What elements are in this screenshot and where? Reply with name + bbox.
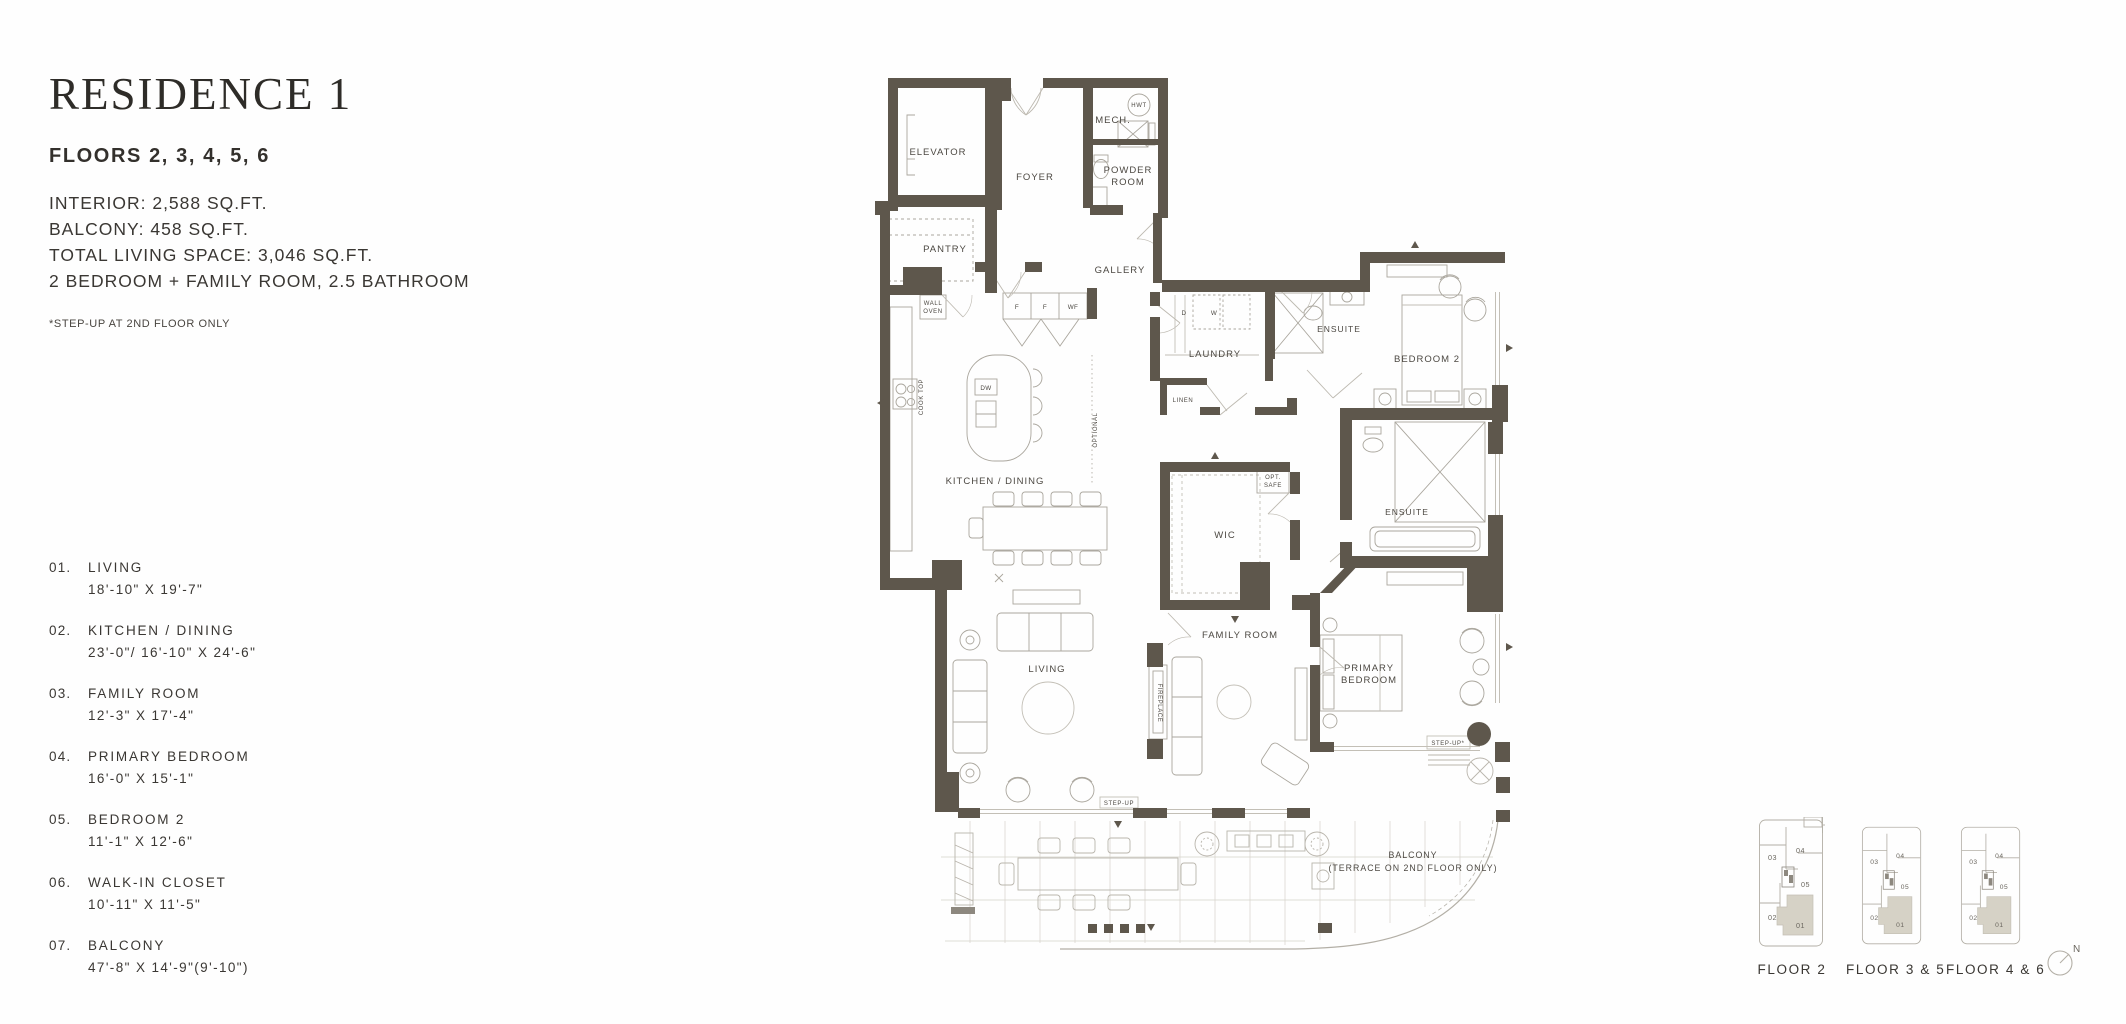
keyplan-unit-03: 03 xyxy=(1969,859,1977,866)
legend-item: 07. BALCONY 47'-8" X 14'-9"(9'-10") xyxy=(49,938,529,998)
room-label-primary-2: BEDROOM xyxy=(1341,675,1397,686)
keyplan-unit-05: 05 xyxy=(1801,880,1810,889)
legend-dims: 12'-3" X 17'-4" xyxy=(88,708,194,723)
legend-num: 05. xyxy=(49,812,71,827)
compass-icon: N xyxy=(2032,938,2092,986)
keyplan-unit-05: 05 xyxy=(2000,884,2008,891)
room-label-hwt: HWT xyxy=(1131,103,1146,109)
label-wine-fridge: WF xyxy=(1068,304,1079,311)
room-label-primary-1: PRIMARY xyxy=(1344,663,1394,674)
balcony-furniture xyxy=(955,755,1493,910)
label-fireplace: FIREPLACE xyxy=(1156,684,1162,723)
legend-num: 07. xyxy=(49,938,71,953)
keyplan-label-floor-4-6: FLOOR 4 & 6 xyxy=(1946,962,2038,977)
room-label-gallery: GALLERY xyxy=(1095,265,1146,276)
label-cook-top: COOK TOP xyxy=(919,379,925,415)
stat-total: TOTAL LIVING SPACE: 3,046 SQ.FT. xyxy=(49,242,470,268)
floors-heading: FLOORS 2, 3, 4, 5, 6 xyxy=(49,145,270,168)
legend-item: 02. KITCHEN / DINING 23'-0"/ 16'-10" X 2… xyxy=(49,623,529,683)
info-panel: RESIDENCE 1 FLOORS 2, 3, 4, 5, 6 INTERIO… xyxy=(49,0,609,1024)
keyplan-unit01-shade xyxy=(1978,897,2011,934)
label-washer: W xyxy=(1211,310,1217,317)
room-label-living: LIVING xyxy=(1028,664,1065,675)
legend-dims: 23'-0"/ 16'-10" X 24'-6" xyxy=(88,645,256,660)
label-dishwasher: DW xyxy=(980,385,991,392)
legend-dims: 11'-1" X 12'-6" xyxy=(88,834,193,849)
stat-balcony: BALCONY: 458 SQ.FT. xyxy=(49,216,470,242)
legend-name: BALCONY xyxy=(88,938,165,953)
room-label-pantry: PANTRY xyxy=(923,244,967,255)
balcony-paving xyxy=(941,821,1493,945)
legend-num: 03. xyxy=(49,686,71,701)
walls xyxy=(875,78,1510,933)
keyplan-unit-02: 02 xyxy=(1768,913,1777,922)
room-label-powder-1: POWDER xyxy=(1104,165,1153,176)
room-label-family-room: FAMILY ROOM xyxy=(1202,630,1278,641)
keyplan-unit-01: 01 xyxy=(1896,922,1904,929)
room-label-powder-2: ROOM xyxy=(1111,177,1145,188)
legend-dims: 18'-10" X 19'-7" xyxy=(88,582,203,597)
floor-plan: ELEVATOR FOYER MECH. HWT POWDER ROOM PAN… xyxy=(875,55,1535,955)
legend-name: BEDROOM 2 xyxy=(88,812,185,827)
keyplan-label-floor-2: FLOOR 2 xyxy=(1752,962,1832,977)
doors xyxy=(942,88,1362,675)
legend-item: 06. WALK-IN CLOSET 10'-11" X 11'-5" xyxy=(49,875,529,935)
legend-item: 01. LIVING 18'-10" X 19'-7" xyxy=(49,560,529,620)
keyplan-unit-03: 03 xyxy=(1768,853,1777,862)
legend-dims: 16'-0" X 15'-1" xyxy=(88,771,194,786)
keyplan-unit-04: 04 xyxy=(1896,853,1904,860)
label-balcony-note: (TERRACE ON 2ND FLOOR ONLY) xyxy=(1328,863,1497,873)
legend-item: 03. FAMILY ROOM 12'-3" X 17'-4" xyxy=(49,686,529,746)
keyplan-unit-01: 01 xyxy=(1995,922,2003,929)
keyplan-unit01-shade xyxy=(1777,895,1813,935)
keyplan-unit-01: 01 xyxy=(1796,921,1805,930)
legend-name: FAMILY ROOM xyxy=(88,686,200,701)
dimension-arrows xyxy=(877,241,1513,931)
label-dryer: D xyxy=(1182,310,1187,317)
keyplan-unit-02: 02 xyxy=(1969,915,1977,922)
label-wall-oven-2: OVEN xyxy=(923,309,942,315)
legend-name: LIVING xyxy=(88,560,143,575)
room-label-elevator: ELEVATOR xyxy=(909,147,966,158)
legend-dims: 47'-8" X 14'-9"(9'-10") xyxy=(88,960,249,975)
room-label-linen: LINEN xyxy=(1173,398,1194,404)
legend-num: 04. xyxy=(49,749,71,764)
stats-block: INTERIOR: 2,588 SQ.FT. BALCONY: 458 SQ.F… xyxy=(49,190,470,294)
room-label-wic: WIC xyxy=(1214,530,1235,541)
keyplan-floor-4-6: 03 04 05 02 01 xyxy=(1960,824,2022,948)
room-label-ensuite-primary: ENSUITE xyxy=(1385,507,1429,517)
label-wall-oven-1: WALL xyxy=(924,301,943,307)
legend-name: KITCHEN / DINING xyxy=(88,623,235,638)
stat-rooms: 2 BEDROOM + FAMILY ROOM, 2.5 BATHROOM xyxy=(49,268,470,294)
room-label-bedroom-2: BEDROOM 2 xyxy=(1394,354,1460,365)
room-labels: ELEVATOR FOYER MECH. HWT POWDER ROOM PAN… xyxy=(909,103,1497,873)
room-label-ensuite-2: ENSUITE xyxy=(1317,324,1361,334)
label-balcony: BALCONY xyxy=(1388,850,1437,860)
label-opt-safe-2: SAFE xyxy=(1264,483,1282,489)
keyplan-unit-04: 04 xyxy=(1995,853,2003,860)
label-opt-safe-1: OPT. xyxy=(1265,475,1281,481)
keyplan-unit-05: 05 xyxy=(1901,884,1909,891)
legend-item: 04. PRIMARY BEDROOM 16'-0" X 15'-1" xyxy=(49,749,529,809)
label-fridge-1: F xyxy=(1015,304,1019,311)
label-step-up: STEP-UP xyxy=(1104,801,1134,807)
legend-num: 06. xyxy=(49,875,71,890)
label-fridge-2: F xyxy=(1043,304,1047,311)
legend-num: 02. xyxy=(49,623,71,638)
keyplan-unit-04: 04 xyxy=(1796,846,1805,855)
legend-num: 01. xyxy=(49,560,71,575)
legend-name: PRIMARY BEDROOM xyxy=(88,749,250,764)
room-label-foyer: FOYER xyxy=(1016,172,1054,183)
legend-dims: 10'-11" X 11'-5" xyxy=(88,897,201,912)
label-step-up-star: STEP-UP* xyxy=(1431,741,1464,747)
keyplan-floor-2: 03 04 05 02 01 xyxy=(1758,817,1825,950)
keyplan-unit01-shade xyxy=(1879,897,1912,934)
keyplan-unit-02: 02 xyxy=(1870,915,1878,922)
floorplan-sheet: RESIDENCE 1 FLOORS 2, 3, 4, 5, 6 INTERIO… xyxy=(0,0,2126,1024)
room-label-kitchen-dining: KITCHEN / DINING xyxy=(946,476,1045,487)
label-optional: OPTIONAL xyxy=(1093,412,1099,447)
compass-north-label: N xyxy=(2073,944,2080,955)
windows xyxy=(958,292,1500,814)
keyplan-label-floor-3-5: FLOOR 3 & 5 xyxy=(1846,962,1938,977)
keyplan-unit-03: 03 xyxy=(1870,859,1878,866)
footnote: *STEP-UP AT 2ND FLOOR ONLY xyxy=(49,318,230,330)
stat-interior: INTERIOR: 2,588 SQ.FT. xyxy=(49,190,470,216)
keyplan-floor-3-5: 03 04 05 02 01 xyxy=(1861,824,1923,948)
legend-name: WALK-IN CLOSET xyxy=(88,875,227,890)
room-label-mech: MECH. xyxy=(1095,115,1131,126)
legend-item: 05. BEDROOM 2 11'-1" X 12'-6" xyxy=(49,812,529,872)
room-label-laundry: LAUNDRY xyxy=(1189,349,1241,360)
page-title: RESIDENCE 1 xyxy=(49,68,352,120)
